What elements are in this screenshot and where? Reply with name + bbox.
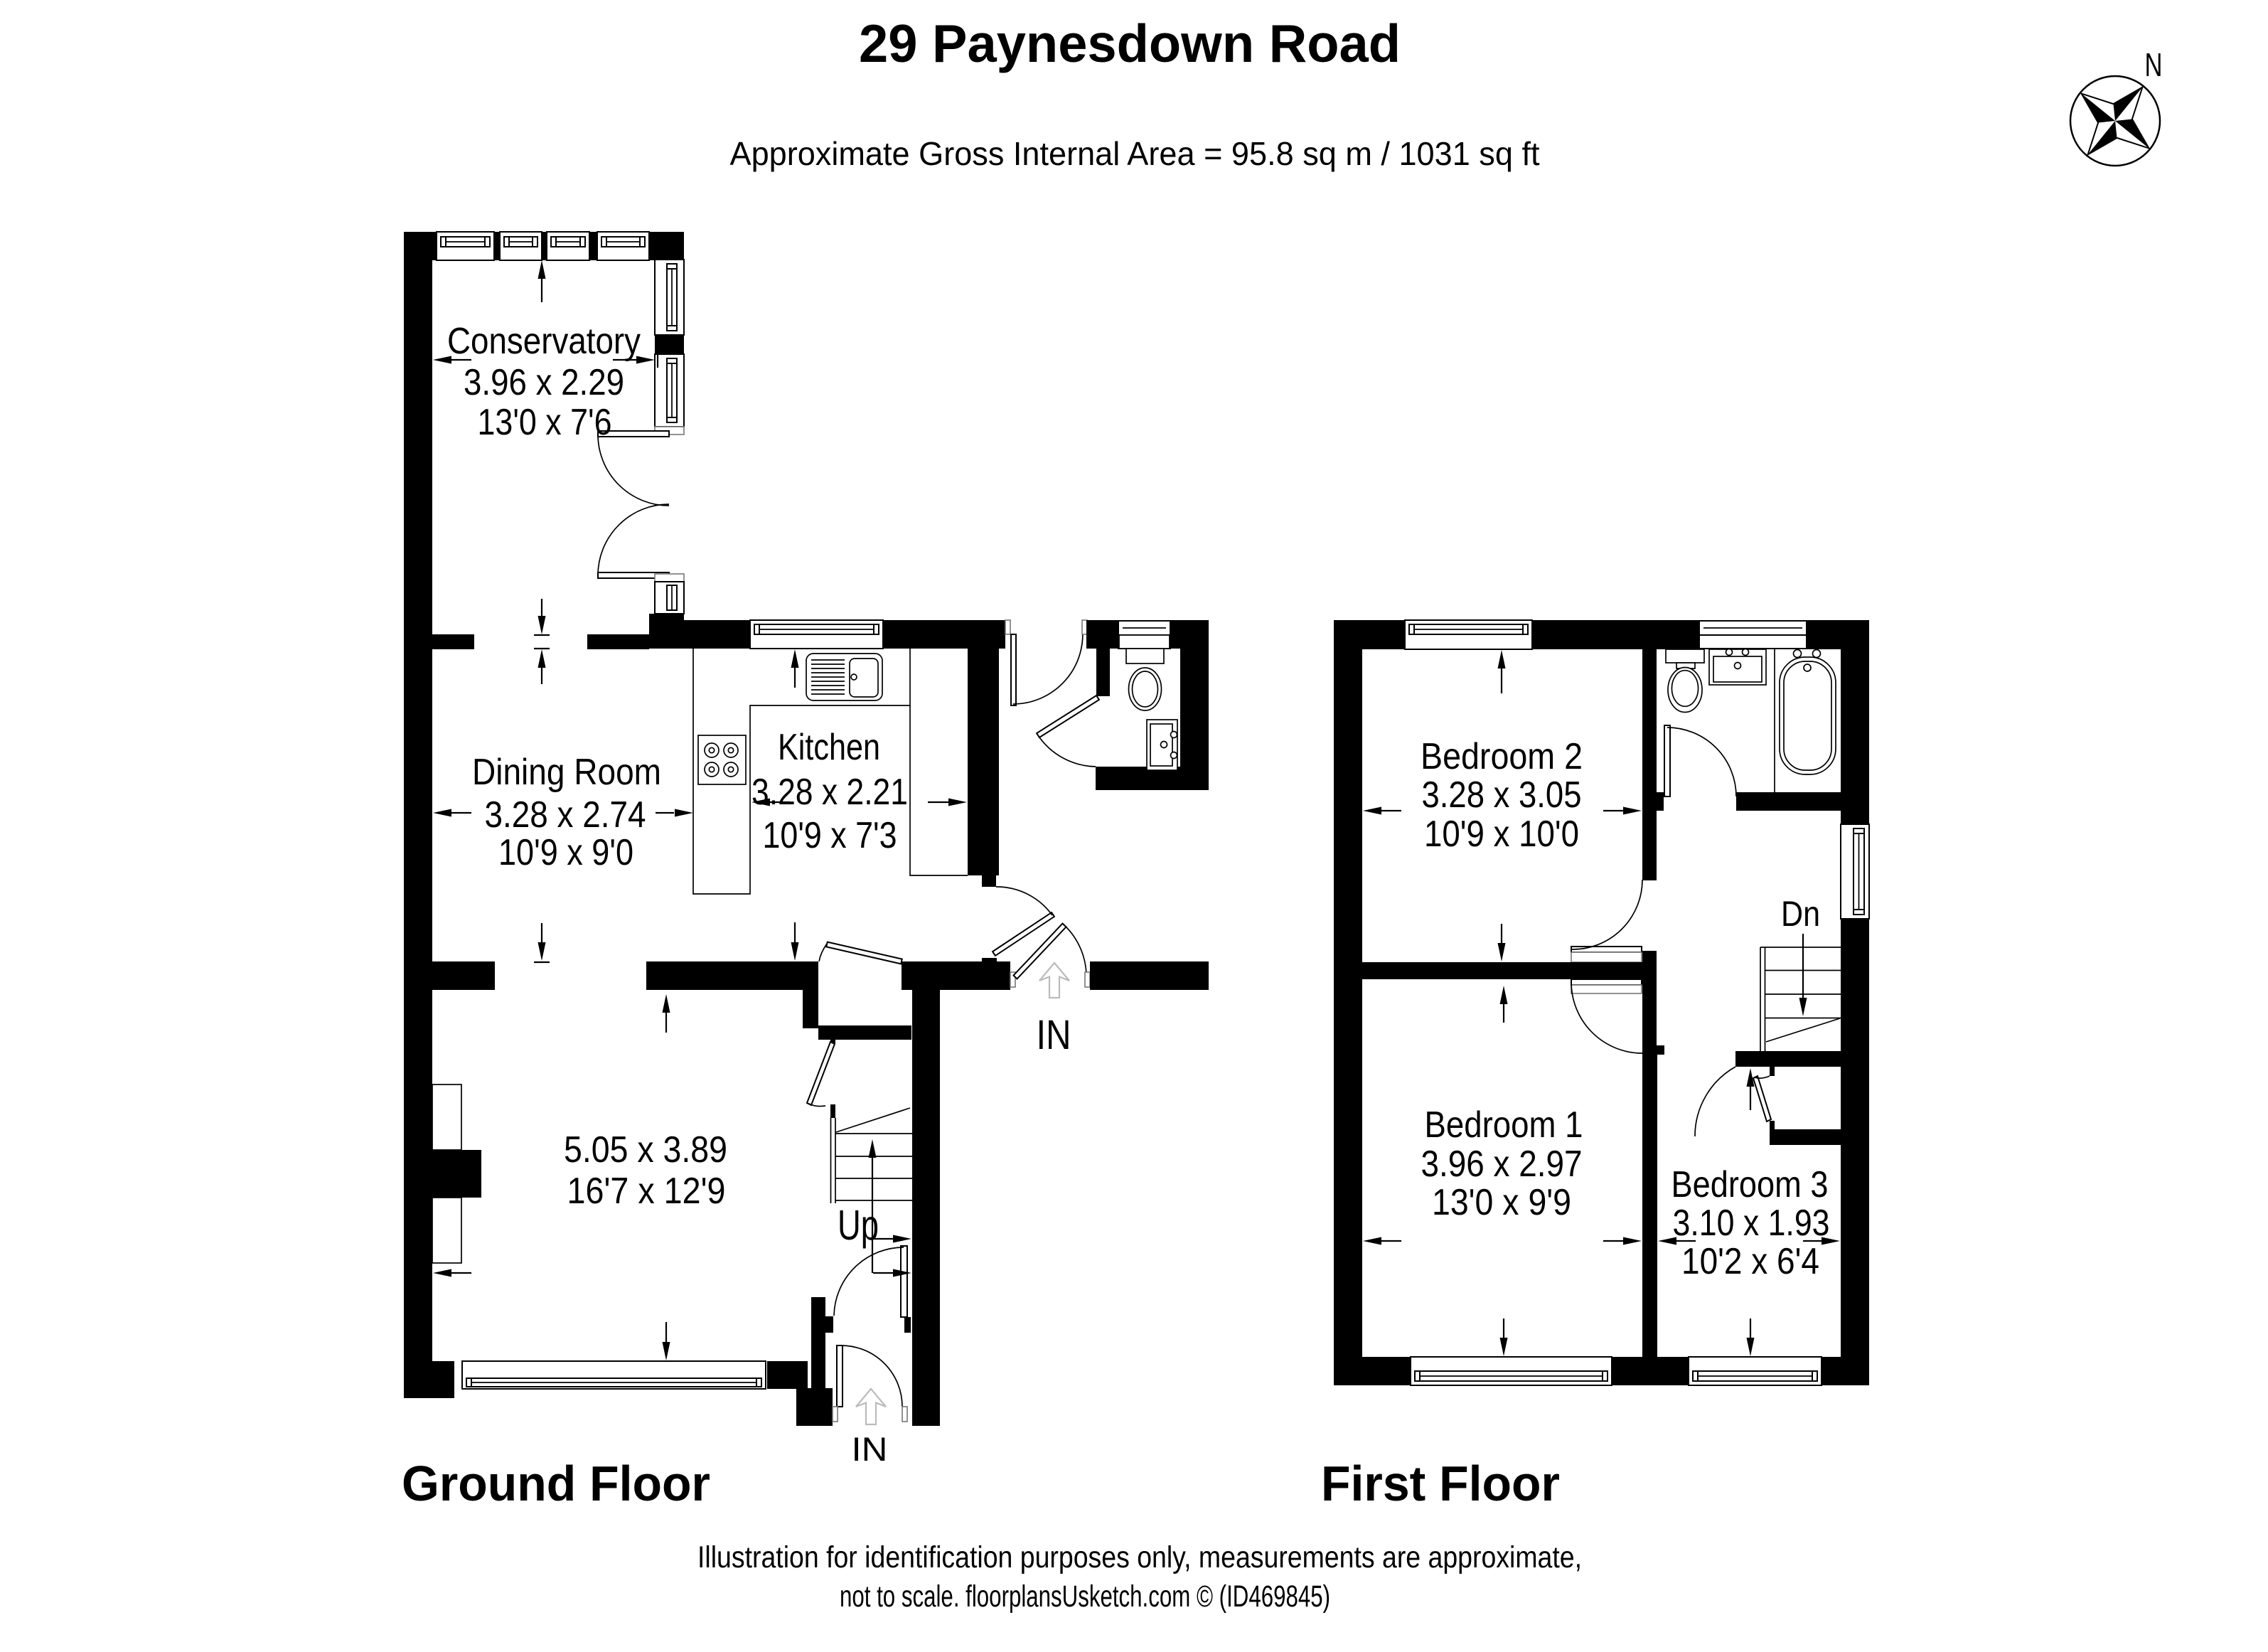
svg-text:10'2 x 6'4: 10'2 x 6'4 xyxy=(1681,1241,1819,1282)
svg-text:Bedroom 2: Bedroom 2 xyxy=(1421,736,1583,777)
svg-text:5.05 x 3.89: 5.05 x 3.89 xyxy=(564,1129,727,1171)
svg-text:Conservatory: Conservatory xyxy=(447,321,641,362)
svg-text:3.10 x 1.93: 3.10 x 1.93 xyxy=(1673,1203,1830,1244)
svg-text:Kitchen: Kitchen xyxy=(778,727,880,768)
svg-text:N: N xyxy=(2145,46,2163,83)
svg-text:10'9 x 9'0: 10'9 x 9'0 xyxy=(498,832,633,873)
svg-text:IN: IN xyxy=(852,1430,888,1468)
svg-text:3.28 x 2.74: 3.28 x 2.74 xyxy=(485,794,646,836)
svg-text:IN: IN xyxy=(1037,1012,1071,1058)
svg-text:3.96 x 2.29: 3.96 x 2.29 xyxy=(464,362,624,403)
svg-text:Bedroom 3: Bedroom 3 xyxy=(1671,1164,1829,1205)
svg-text:Illustration for identificatio: Illustration for identification purposes… xyxy=(697,1540,1582,1574)
svg-text:16'7 x 12'9: 16'7 x 12'9 xyxy=(567,1171,726,1212)
svg-text:3.28 x 2.21: 3.28 x 2.21 xyxy=(751,772,908,813)
svg-text:Bedroom 1: Bedroom 1 xyxy=(1425,1104,1583,1146)
svg-text:10'9 x 10'0: 10'9 x 10'0 xyxy=(1424,814,1579,855)
svg-text:Up: Up xyxy=(838,1202,879,1249)
svg-text:29 Paynesdown Road: 29 Paynesdown Road xyxy=(859,14,1401,73)
svg-text:First Floor: First Floor xyxy=(1321,1456,1560,1511)
svg-text:13'0 x 7'6: 13'0 x 7'6 xyxy=(478,402,612,443)
svg-text:3.96 x 2.97: 3.96 x 2.97 xyxy=(1421,1144,1583,1185)
svg-text:3.28 x 3.05: 3.28 x 3.05 xyxy=(1422,774,1582,816)
svg-text:Dn: Dn xyxy=(1781,894,1820,934)
svg-text:Dining Room: Dining Room xyxy=(472,752,661,793)
svg-text:Ground Floor: Ground Floor xyxy=(402,1456,710,1511)
svg-text:Approximate Gross Internal Are: Approximate Gross Internal Area = 95.8 s… xyxy=(730,135,1540,172)
svg-text:13'0 x 9'9: 13'0 x 9'9 xyxy=(1432,1182,1571,1223)
svg-text:10'9 x 7'3: 10'9 x 7'3 xyxy=(763,815,897,856)
svg-text:not to scale. floorplansUsketc: not to scale. floorplansUsketch.com © (I… xyxy=(840,1579,1330,1614)
